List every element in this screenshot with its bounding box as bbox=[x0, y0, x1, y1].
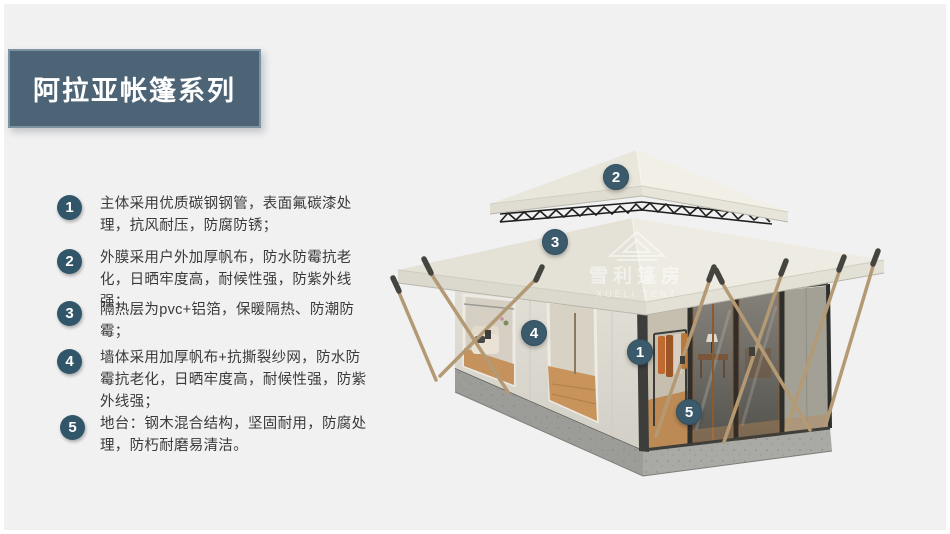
watermark-text-en: XUELI TENT bbox=[596, 289, 678, 299]
feature-text: 隔热层为pvc+铝箔，保暖隔热、防潮防霉； bbox=[100, 299, 372, 343]
feature-number-badge: 2 bbox=[57, 249, 82, 274]
title-banner: 阿拉亚帐篷系列 bbox=[8, 49, 261, 128]
watermark-text-cn: 雪利篷房 bbox=[589, 264, 685, 287]
callout-marker-3: 3 bbox=[542, 229, 568, 255]
callout-marker-1: 1 bbox=[627, 339, 653, 365]
page-title: 阿拉亚帐篷系列 bbox=[33, 69, 236, 108]
callout-marker-4: 4 bbox=[521, 320, 547, 346]
feature-text: 主体采用优质碳钢钢管，表面氟碳漆处理，抗风耐压，防腐防锈； bbox=[100, 193, 372, 237]
feature-number-badge: 5 bbox=[60, 415, 85, 440]
feature-text: 地台：钢木混合结构，坚固耐用，防腐处理，防朽耐磨易清洁。 bbox=[100, 413, 372, 457]
tent-illustration: 雪利篷房 XUELI TENT bbox=[390, 138, 920, 508]
callout-marker-5: 5 bbox=[676, 399, 702, 425]
tent-render: 雪利篷房 XUELI TENT bbox=[390, 138, 920, 508]
callout-marker-2: 2 bbox=[603, 164, 629, 190]
slide-stage: 阿拉亚帐篷系列 1 主体采用优质碳钢钢管，表面氟碳漆处理，抗风耐压，防腐防锈； … bbox=[0, 0, 950, 534]
feature-number-badge: 1 bbox=[57, 195, 82, 220]
feature-number-badge: 4 bbox=[57, 349, 82, 374]
feature-text: 墙体采用加厚帆布+抗撕裂纱网，防水防霉抗老化，日晒牢度高，耐候性强，防紫外线强； bbox=[100, 347, 372, 413]
feature-number-badge: 3 bbox=[57, 301, 82, 326]
tent-corner-post bbox=[637, 303, 649, 452]
